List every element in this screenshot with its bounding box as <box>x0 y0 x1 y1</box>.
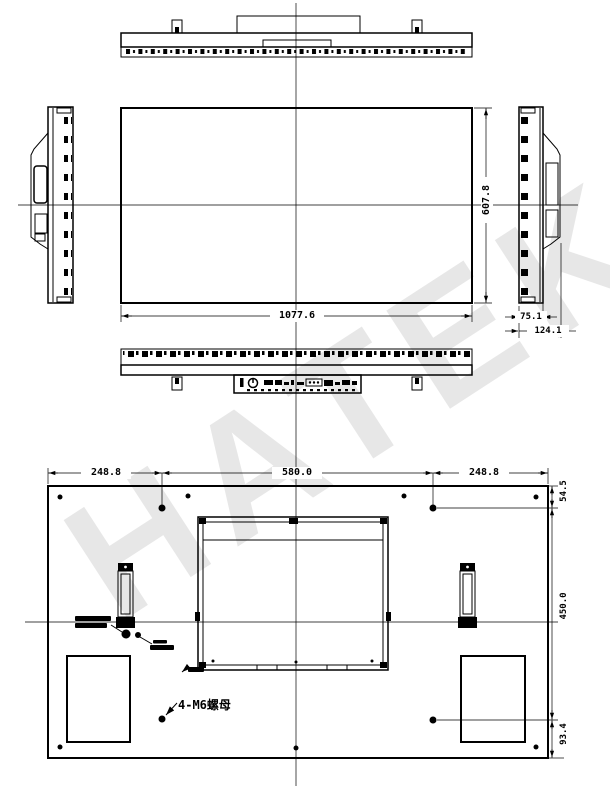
keypad-buttons <box>35 214 47 233</box>
dim-rear-bottom-offset: 93.4 <box>558 714 570 754</box>
connector-block-upper <box>546 163 558 205</box>
right-side-view <box>519 107 560 303</box>
dimension-lines <box>48 108 576 758</box>
technical-drawing <box>0 0 610 787</box>
mount-note-label: 4-M6螺母 <box>178 696 231 713</box>
m6-mount-holes <box>159 505 437 724</box>
vent-grille-right <box>461 656 525 742</box>
connector-block-lower <box>546 210 558 237</box>
handle-bracket-right <box>458 563 477 628</box>
io-panel <box>234 375 361 393</box>
dim-rear-hole-span-v: 450.0 <box>558 584 570 628</box>
bottom-clip-row <box>123 351 470 361</box>
dim-rear-hole-span-h: 580.0 <box>272 467 322 479</box>
right-clip-column <box>520 110 528 300</box>
front-view <box>121 108 472 303</box>
top-view <box>121 16 472 57</box>
dim-side-depth: 75.1 <box>515 311 547 323</box>
mount-plate <box>195 517 391 670</box>
dim-side-total-depth: 124.1 <box>527 325 569 337</box>
handle-bracket-left <box>116 563 135 628</box>
drawing-sheet: HATEK <box>0 0 610 787</box>
m6-note-leader <box>166 703 177 715</box>
left-clip-column <box>64 110 72 300</box>
io-ports-icons <box>240 378 357 392</box>
micro-callouts <box>75 616 204 672</box>
dim-front-width: 1077.6 <box>270 310 324 322</box>
dim-rear-right-offset: 248.8 <box>459 467 509 479</box>
top-clip-row <box>126 49 466 55</box>
bottom-view <box>121 349 472 393</box>
dim-front-height: 607.8 <box>481 177 493 223</box>
left-handle-cutout <box>34 166 47 203</box>
vent-grille-left <box>67 656 130 742</box>
dim-rear-top-offset: 54.5 <box>558 471 570 511</box>
centerlines <box>18 3 578 786</box>
dim-rear-left-offset: 248.8 <box>81 467 131 479</box>
